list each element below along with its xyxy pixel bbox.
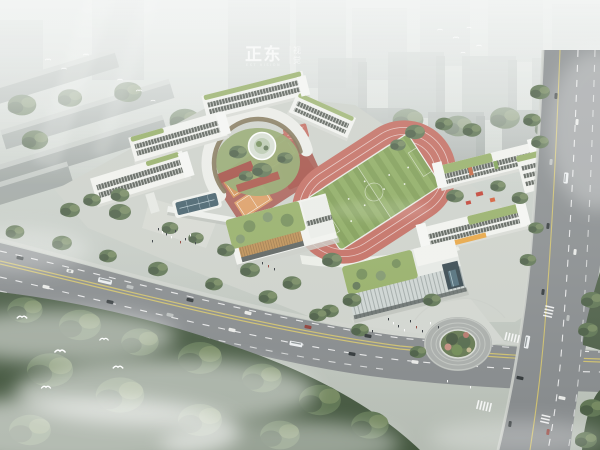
global-haze-overlay — [0, 0, 600, 450]
aerial-rendering: 正东 EST VISION 视 觉 — [0, 0, 600, 450]
rendering-canvas: 正东 EST VISION 视 觉 — [0, 0, 600, 450]
